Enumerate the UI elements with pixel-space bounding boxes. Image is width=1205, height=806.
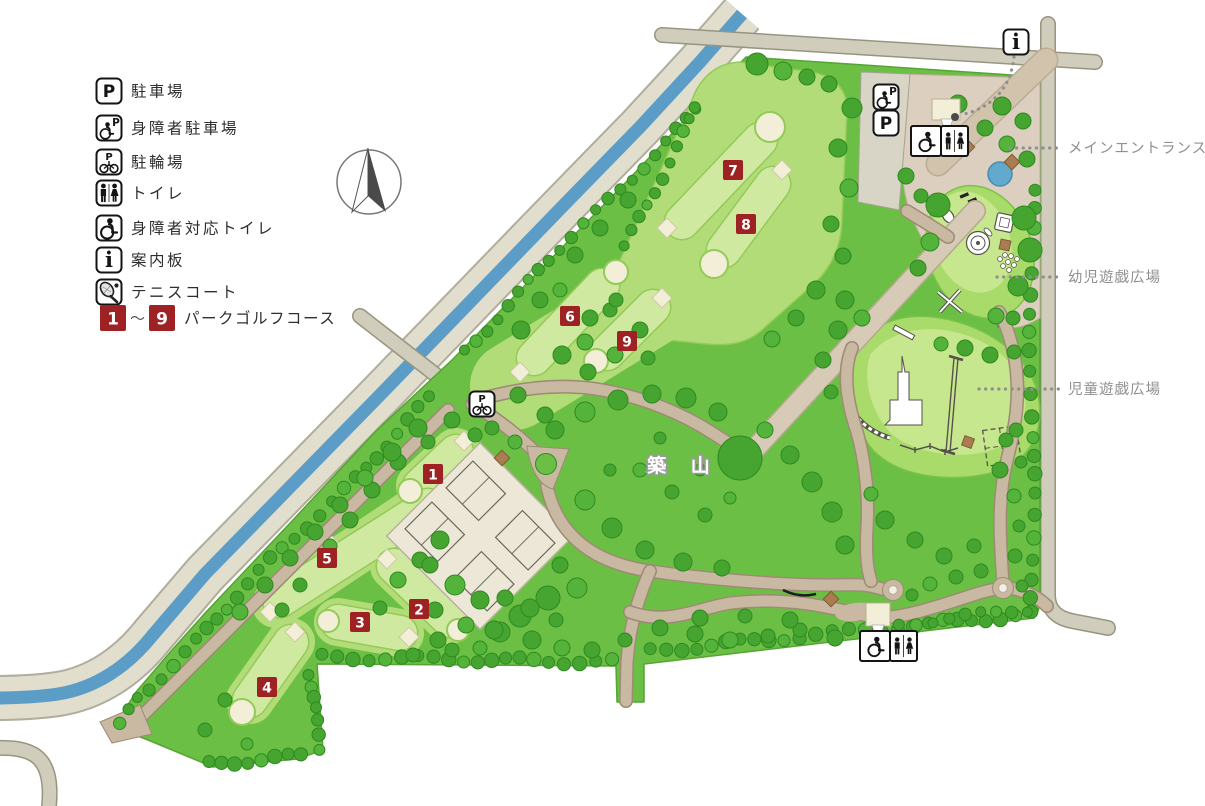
legend-label: 身障者対応トイレ bbox=[131, 220, 275, 238]
svg-text:4: 4 bbox=[262, 681, 272, 697]
svg-text:3: 3 bbox=[355, 616, 365, 632]
svg-text:8: 8 bbox=[741, 218, 751, 234]
compass-north-icon bbox=[337, 148, 401, 214]
legend-label: 身障者駐車場 bbox=[131, 120, 239, 138]
svg-text:9: 9 bbox=[156, 310, 168, 330]
golf-green bbox=[700, 250, 728, 278]
golf-green bbox=[604, 260, 628, 284]
golf-green bbox=[229, 699, 255, 725]
golf-marker-2: 2 bbox=[409, 599, 429, 619]
legend-golf-tilde: ～ bbox=[130, 310, 145, 328]
legend-golf-marker: 9 bbox=[149, 305, 175, 331]
legend-label: 案内板 bbox=[131, 252, 185, 270]
svg-text:9: 9 bbox=[622, 335, 632, 351]
park-map: PPPi123456789築 山メインエントランス広場幼児遊戯広場児童遊戯広場駐… bbox=[0, 0, 1205, 806]
legend-icon-tennis-court bbox=[97, 280, 122, 305]
map-icon-bicycle-parking bbox=[470, 392, 495, 417]
legend-golf-marker: 1 bbox=[100, 305, 126, 331]
legend-label: テニスコート bbox=[131, 284, 239, 302]
svg-text:2: 2 bbox=[414, 603, 424, 619]
golf-marker-5: 5 bbox=[317, 548, 337, 568]
golf-marker-4: 4 bbox=[257, 677, 277, 697]
legend-icon-toilet bbox=[97, 181, 122, 206]
map-icon-info-board bbox=[1004, 29, 1029, 55]
golf-marker-9: 9 bbox=[617, 331, 637, 351]
map-icon-toilet-accessible-combo bbox=[911, 126, 968, 156]
map-icon-parking bbox=[874, 111, 899, 136]
legend-icon-accessible-toilet bbox=[97, 216, 122, 241]
golf-green bbox=[317, 610, 339, 632]
legend-icon-wheelchair-parking bbox=[97, 116, 122, 141]
hill-label: 築 山 bbox=[646, 454, 719, 477]
golf-green bbox=[755, 112, 785, 142]
golf-green bbox=[398, 479, 422, 503]
svg-text:5: 5 bbox=[322, 552, 332, 568]
leader-label: 幼児遊戯広場 bbox=[1068, 269, 1161, 286]
golf-marker-1: 1 bbox=[423, 464, 443, 484]
golf-marker-6: 6 bbox=[560, 306, 580, 326]
legend-label: トイレ bbox=[131, 185, 185, 203]
golf-marker-8: 8 bbox=[736, 214, 756, 234]
leader-label: 児童遊戯広場 bbox=[1068, 380, 1161, 398]
legend-icon-info-board bbox=[97, 247, 122, 273]
svg-text:1: 1 bbox=[107, 310, 119, 330]
legend-golf-label: パークゴルフコース bbox=[184, 309, 336, 328]
legend-label: 駐輪場 bbox=[131, 154, 185, 172]
toilet-building-south bbox=[866, 603, 890, 626]
svg-text:6: 6 bbox=[565, 310, 575, 326]
svg-text:7: 7 bbox=[728, 164, 738, 180]
golf-marker-3: 3 bbox=[350, 612, 370, 632]
map-icon-wheelchair-parking bbox=[874, 85, 899, 110]
legend-icon-parking bbox=[97, 79, 122, 104]
map-icon-toilet-accessible-combo bbox=[860, 631, 917, 661]
legend-icon-bicycle-parking bbox=[97, 150, 122, 175]
legend: 駐車場身障者駐車場駐輪場トイレ身障者対応トイレ案内板テニスコート19～パークゴル… bbox=[97, 79, 337, 332]
golf-marker-7: 7 bbox=[723, 160, 743, 180]
leader-label: メインエントランス広場 bbox=[1068, 140, 1205, 157]
legend-label: 駐車場 bbox=[131, 83, 185, 101]
svg-text:1: 1 bbox=[428, 468, 438, 484]
park-map-page: PPPi123456789築 山メインエントランス広場幼児遊戯広場児童遊戯広場駐… bbox=[0, 0, 1205, 806]
